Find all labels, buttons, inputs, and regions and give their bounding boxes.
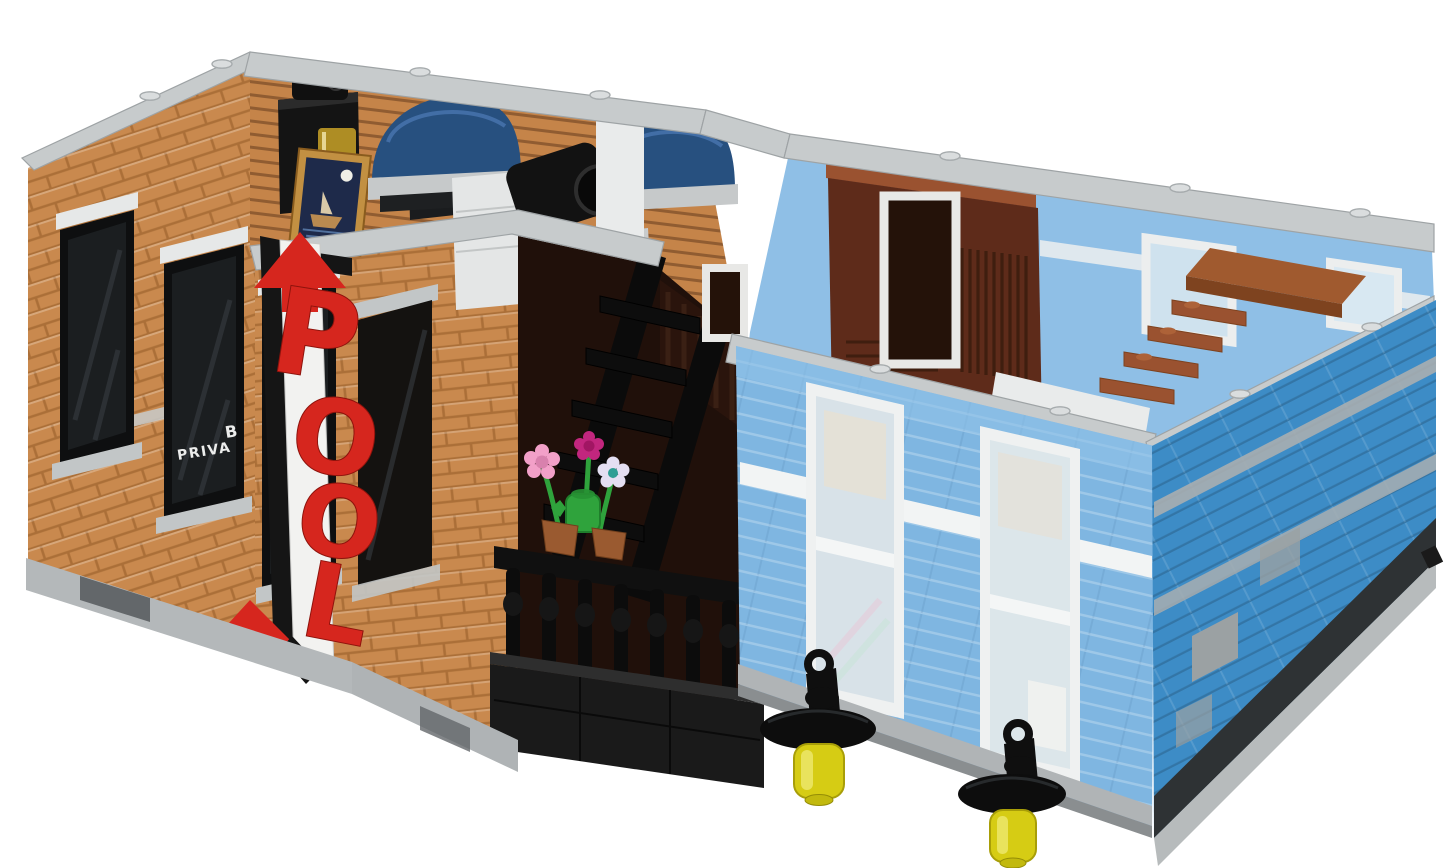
side-window-2: B PRIVA: [156, 226, 252, 534]
lamp-shade: [958, 774, 1066, 814]
lego-modular-building-floor: B PRIVA: [0, 0, 1445, 868]
facade-window-a: [806, 382, 904, 719]
interior-door-frame: [884, 196, 956, 364]
flower-pot: [542, 520, 578, 556]
decal-initial: B: [224, 421, 241, 442]
side-window-1: [52, 192, 142, 480]
nook-door-frame: [706, 268, 744, 338]
lamp-bulb: [990, 810, 1036, 862]
flower-pot: [592, 528, 626, 560]
lego-product-photo: B PRIVA: [0, 0, 1445, 868]
